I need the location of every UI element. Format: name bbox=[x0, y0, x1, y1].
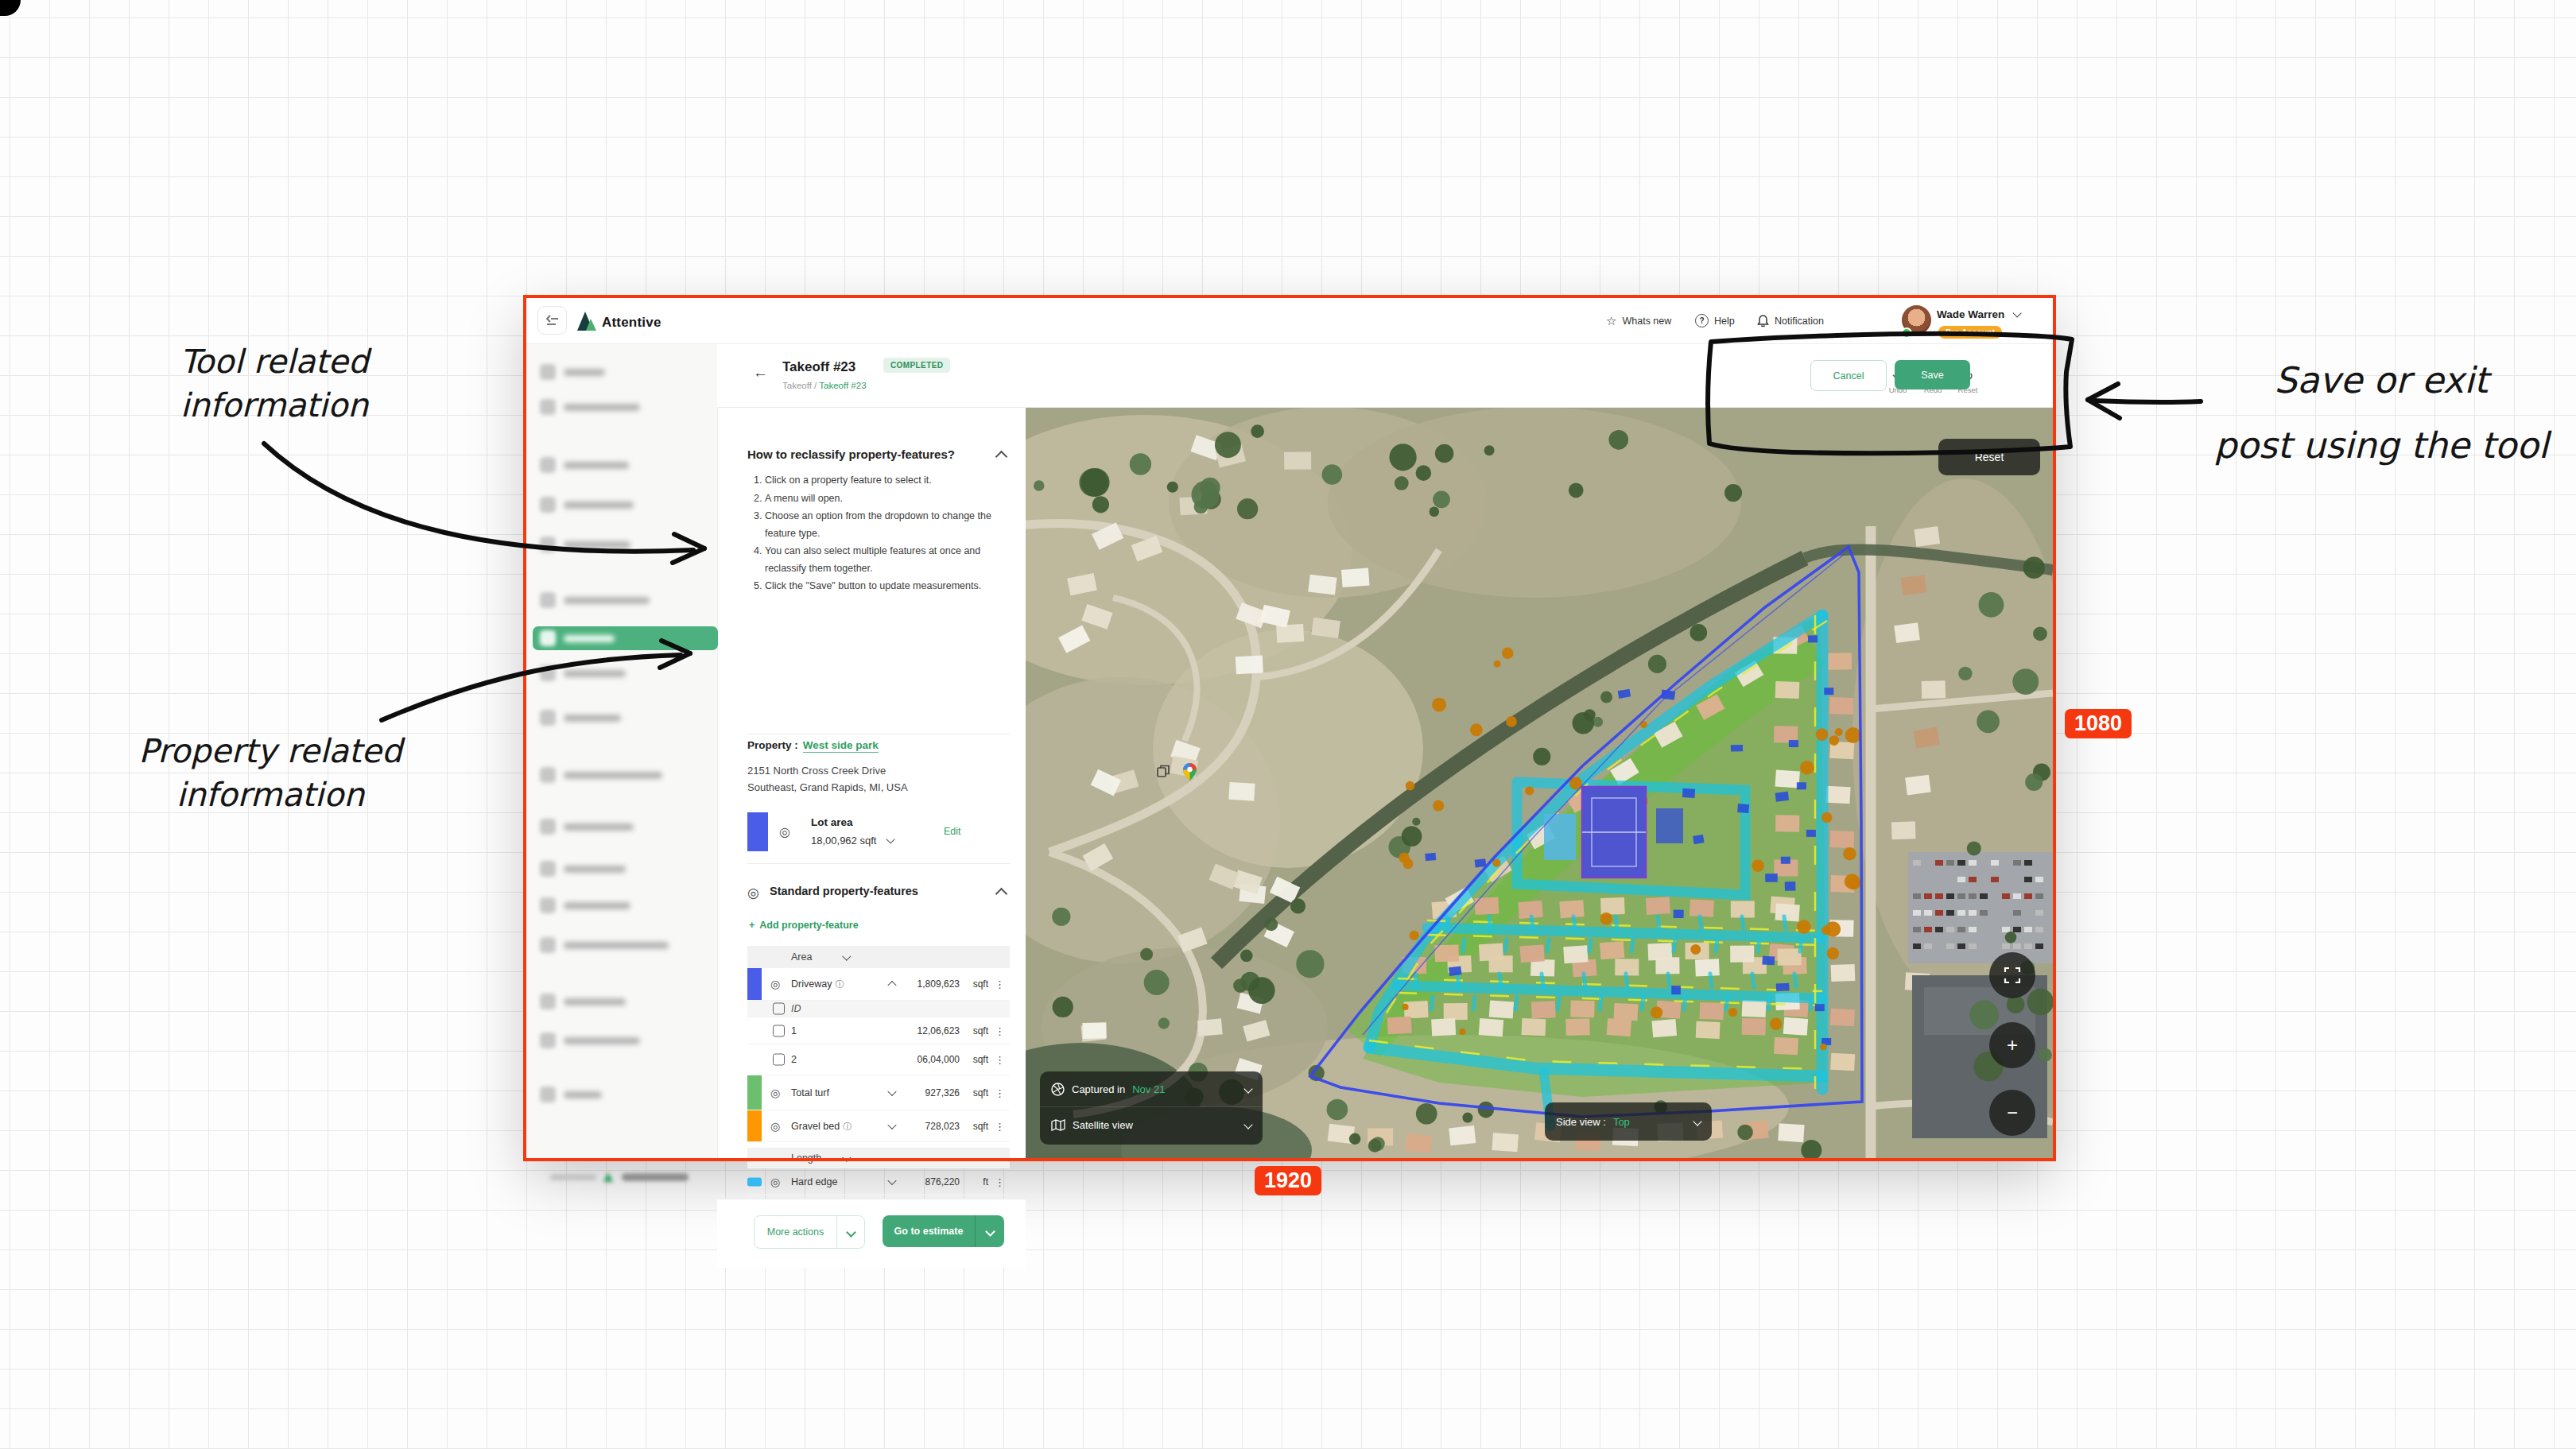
feature-row[interactable]: 2 06,04,000sqft ⋮ bbox=[747, 1044, 1010, 1075]
lot-area-value[interactable]: 18,00,962 sqft bbox=[811, 835, 892, 847]
howto-step: You can also select multiple features at… bbox=[765, 543, 1013, 577]
sidebar-item-icon bbox=[540, 364, 556, 380]
annotation-property-note: Property relatedinformation bbox=[76, 730, 465, 817]
howto-step: A menu will open. bbox=[765, 490, 1013, 508]
sidebar-item[interactable] bbox=[533, 661, 718, 685]
sidebar-item[interactable] bbox=[533, 1083, 718, 1106]
fullscreen-icon bbox=[2004, 967, 2021, 984]
feature-visibility-icon[interactable]: ◎ bbox=[770, 978, 780, 990]
feature-color-swatch bbox=[747, 1110, 762, 1141]
property-address-line1: 2151 North Cross Creek Drive bbox=[747, 765, 886, 777]
feature-row[interactable]: ID bbox=[747, 1001, 1010, 1017]
breadcrumb-current: Takeoff #23 bbox=[819, 381, 866, 390]
chevron-down-icon bbox=[1243, 1084, 1252, 1093]
sidebar-item-icon bbox=[540, 457, 556, 473]
sidebar-item-icon bbox=[540, 537, 556, 552]
chevron-down-icon bbox=[842, 1153, 851, 1162]
sidebar-item-label-blurred bbox=[564, 942, 669, 949]
property-panel: How to reclassify property-features? Cli… bbox=[717, 407, 1026, 1158]
sidebar-item[interactable] bbox=[533, 857, 718, 881]
sidebar-item[interactable] bbox=[533, 493, 718, 517]
sidebar-footer-logo bbox=[550, 1170, 693, 1184]
feature-expand-icon[interactable] bbox=[887, 1120, 896, 1129]
go-to-estimate-button[interactable]: Go to estimate bbox=[883, 1215, 1004, 1247]
user-name[interactable]: Wade Warren bbox=[1937, 308, 2019, 320]
whats-new-link[interactable]: ☆ Whats new bbox=[1606, 298, 1671, 343]
divider bbox=[747, 734, 1010, 734]
sidebar-item-icon bbox=[540, 1087, 556, 1102]
row-checkbox[interactable] bbox=[773, 1025, 785, 1036]
chevron-down-icon bbox=[1243, 1120, 1252, 1129]
sidebar-item-label-blurred bbox=[564, 1037, 640, 1044]
height-dimension-badge: 1080 bbox=[2065, 709, 2132, 738]
feature-group-row[interactable]: Area bbox=[747, 946, 1010, 968]
captured-date-value: Nov 21 bbox=[1132, 1083, 1165, 1095]
sidebar-item-label-blurred bbox=[564, 902, 630, 909]
chevron-down-icon bbox=[2012, 308, 2021, 317]
sidebar-item-label-blurred bbox=[564, 635, 615, 642]
breadcrumb: Takeoff / Takeoff #23 bbox=[782, 381, 867, 390]
panel-footer: More actions Go to estimate bbox=[717, 1199, 1026, 1268]
howto-step: Click the "Save" button to update measur… bbox=[765, 578, 1013, 595]
fullscreen-button[interactable] bbox=[1989, 952, 2035, 998]
annotation-save-note: Save or exitpost using the tool bbox=[2194, 348, 2568, 478]
row-menu-icon[interactable]: ⋮ bbox=[995, 1087, 1005, 1098]
feature-table: Area ◎ Drivewayⓘ 1,809,623sqft ⋮ ID 1 12… bbox=[747, 946, 1010, 1195]
feature-row[interactable]: ◎ Drivewayⓘ 1,809,623sqft ⋮ bbox=[747, 968, 1010, 1001]
bell-icon bbox=[1757, 315, 1769, 327]
side-view-value: Top bbox=[1613, 1116, 1630, 1128]
sidebar-item-selected[interactable] bbox=[533, 626, 718, 650]
more-actions-button[interactable]: More actions bbox=[754, 1215, 865, 1249]
cancel-button[interactable]: Cancel bbox=[1810, 360, 1887, 391]
copy-address-icon[interactable] bbox=[1155, 763, 1171, 779]
sidebar-item-icon bbox=[540, 819, 556, 835]
row-menu-icon[interactable]: ⋮ bbox=[995, 1025, 1005, 1036]
feature-visibility-icon[interactable]: ◎ bbox=[770, 1176, 780, 1188]
attentive-logo-icon bbox=[576, 311, 598, 331]
feature-row[interactable]: ◎ Hard edge 876,220ft ⋮ bbox=[747, 1168, 1010, 1195]
status-badge: COMPLETED bbox=[883, 358, 950, 373]
lot-area-title: Lot area bbox=[811, 816, 853, 828]
property-address-line2: Southeast, Grand Rapids, MI, USA bbox=[747, 781, 908, 793]
sidebar-item[interactable] bbox=[533, 706, 718, 730]
sidebar-item-label-blurred bbox=[564, 1091, 602, 1098]
feature-row[interactable]: 1 12,06,623sqft ⋮ bbox=[747, 1017, 1010, 1044]
attentive-logo-text: Attentive bbox=[602, 315, 661, 331]
takeoff-title: Takeoff #23 bbox=[782, 359, 855, 375]
feature-color-swatch bbox=[747, 1177, 762, 1186]
howto-step: Choose an option from the dropdown to ch… bbox=[765, 508, 1013, 542]
breadcrumb-divider: / bbox=[814, 381, 817, 390]
sidebar-item[interactable] bbox=[533, 893, 718, 917]
back-button[interactable]: ← bbox=[753, 364, 768, 382]
sidebar-item[interactable] bbox=[533, 395, 718, 419]
online-status-dot bbox=[1901, 327, 1912, 339]
captured-date-selector[interactable]: Captured in Nov 21 bbox=[1040, 1071, 1263, 1106]
sidebar-collapse-button[interactable] bbox=[537, 306, 567, 335]
sidebar-item-icon bbox=[540, 1033, 556, 1048]
sidebar-item-icon bbox=[540, 710, 556, 726]
feature-row[interactable]: ◎ Total turf 927,326sqft ⋮ bbox=[747, 1075, 1010, 1110]
select-all-checkbox[interactable] bbox=[773, 1003, 785, 1015]
lot-visibility-icon[interactable]: ◎ bbox=[779, 824, 790, 839]
notification-link[interactable]: Notification bbox=[1757, 298, 1824, 343]
sidebar-item-icon bbox=[540, 994, 556, 1009]
map-view-selector[interactable]: Satellite view bbox=[1040, 1106, 1263, 1142]
map-layers-panel: Captured in Nov 21 Satellite view bbox=[1040, 1071, 1263, 1145]
satellite-map[interactable] bbox=[1026, 407, 2053, 1158]
map-icon bbox=[1051, 1119, 1065, 1131]
sidebar-item-label-blurred bbox=[564, 597, 650, 604]
zoom-out-button[interactable]: − bbox=[1989, 1090, 2035, 1136]
feature-visibility-icon[interactable]: ◎ bbox=[770, 1087, 780, 1099]
help-link[interactable]: ? Help bbox=[1695, 298, 1735, 343]
map-viewport[interactable]: Reset Captured in Nov 21 Satellite view bbox=[1026, 407, 2053, 1158]
howto-steps: Click on a property feature to select it… bbox=[747, 472, 1013, 596]
feature-visibility-icon[interactable]: ◎ bbox=[770, 1120, 780, 1133]
sidebar-item-label-blurred bbox=[564, 866, 626, 873]
howto-collapse-icon[interactable] bbox=[995, 451, 1008, 463]
sidebar-item-label-blurred bbox=[564, 462, 629, 469]
feature-color-swatch bbox=[747, 1075, 762, 1110]
sidebar-item-label-blurred bbox=[564, 715, 621, 722]
row-menu-icon[interactable]: ⋮ bbox=[995, 978, 1005, 990]
sidebar-item[interactable] bbox=[533, 360, 718, 384]
app-header: Attentive ☆ Whats new ? Help Notificatio… bbox=[526, 298, 2053, 344]
features-section-title: Standard property-features bbox=[770, 885, 918, 897]
star-icon: ☆ bbox=[1606, 314, 1616, 328]
breadcrumb-parent[interactable]: Takeoff bbox=[782, 381, 812, 390]
sidebar-item-icon bbox=[540, 937, 556, 953]
pro-account-badge: Pro Account bbox=[1938, 326, 2002, 339]
row-checkbox[interactable] bbox=[773, 1054, 785, 1066]
divider bbox=[747, 863, 1010, 864]
features-collapse-icon[interactable] bbox=[995, 888, 1008, 901]
sidebar-item-icon bbox=[540, 592, 556, 608]
sidebar-item[interactable] bbox=[533, 533, 718, 556]
sidebar-item-icon bbox=[540, 665, 556, 681]
sidebar-item-label-blurred bbox=[564, 998, 626, 1005]
sidebar-item[interactable] bbox=[533, 815, 718, 839]
sidebar-item-label-blurred bbox=[564, 823, 634, 831]
row-menu-icon[interactable]: ⋮ bbox=[995, 1054, 1005, 1066]
row-menu-icon[interactable]: ⋮ bbox=[995, 1120, 1005, 1132]
add-property-feature-link[interactable]: +Add property-feature bbox=[749, 920, 859, 931]
sidebar-item[interactable] bbox=[533, 1029, 718, 1052]
sidebar-item[interactable] bbox=[533, 933, 718, 957]
info-icon: ⓘ bbox=[843, 1121, 852, 1130]
sidebar-item[interactable] bbox=[533, 453, 718, 477]
app-sidebar bbox=[526, 343, 718, 1158]
sidebar-item-label-blurred bbox=[564, 369, 605, 376]
feature-expand-icon[interactable] bbox=[887, 1176, 896, 1184]
chevron-down-icon bbox=[985, 1226, 995, 1237]
feature-group-row[interactable]: Length bbox=[747, 1148, 1010, 1168]
property-name-link[interactable]: West side park bbox=[803, 739, 879, 753]
zoom-in-button[interactable]: + bbox=[1989, 1022, 2035, 1068]
sidebar-item-icon bbox=[540, 861, 556, 877]
sidebar-item-label-blurred bbox=[564, 772, 662, 779]
info-icon: ⓘ bbox=[835, 979, 844, 989]
google-maps-pin-icon[interactable] bbox=[1183, 763, 1197, 781]
save-button[interactable]: Save bbox=[1895, 360, 1970, 389]
side-view-selector[interactable]: Side view : Top bbox=[1545, 1102, 1712, 1141]
capture-aperture-icon bbox=[1051, 1083, 1065, 1096]
lot-area-color-swatch bbox=[747, 812, 768, 851]
chevron-down-icon bbox=[842, 952, 851, 961]
howto-step: Click on a property feature to select it… bbox=[765, 472, 1013, 490]
sidebar-item[interactable] bbox=[533, 990, 718, 1013]
attentive-app-window: Attentive ☆ Whats new ? Help Notificatio… bbox=[526, 298, 2053, 1158]
help-icon: ? bbox=[1695, 314, 1709, 327]
takeoff-toolbar: ← Takeoff #23 COMPLETED Takeoff / Takeof… bbox=[717, 343, 2053, 408]
sidebar-item-label-blurred bbox=[564, 404, 640, 411]
row-menu-icon[interactable]: ⋮ bbox=[995, 1176, 1005, 1187]
sidebar-item-icon bbox=[540, 630, 556, 646]
sidebar-item-icon bbox=[540, 497, 556, 513]
features-section-icon: ◎ bbox=[747, 885, 759, 901]
feature-expand-icon[interactable] bbox=[887, 981, 896, 990]
sidebar-item-icon bbox=[540, 767, 556, 783]
property-row: Property :West side park bbox=[747, 739, 879, 751]
feature-expand-icon[interactable] bbox=[887, 1087, 896, 1095]
feature-color-swatch bbox=[747, 968, 762, 1000]
map-reset-button[interactable]: Reset bbox=[1938, 439, 2040, 475]
sidebar-item-icon bbox=[540, 399, 556, 415]
chevron-down-icon bbox=[886, 835, 894, 843]
howto-title: How to reclassify property-features? bbox=[747, 447, 978, 461]
chevron-down-icon bbox=[846, 1227, 856, 1238]
sidebar-item[interactable] bbox=[533, 763, 718, 787]
annotation-tool-note: Tool relatedinformation bbox=[103, 340, 445, 428]
width-dimension-badge: 1920 bbox=[1255, 1166, 1321, 1195]
sidebar-item[interactable] bbox=[533, 588, 718, 612]
edit-lot-area-link[interactable]: Edit bbox=[944, 826, 961, 837]
sidebar-item-icon bbox=[540, 897, 556, 913]
feature-row[interactable]: ◎ Gravel bedⓘ 728,023sqft ⋮ bbox=[747, 1110, 1010, 1142]
chevron-down-icon bbox=[1693, 1117, 1701, 1125]
collapse-left-icon bbox=[545, 314, 560, 327]
sidebar-item-label-blurred bbox=[564, 502, 634, 509]
sidebar-item-label-blurred bbox=[564, 541, 630, 548]
plus-icon: + bbox=[749, 920, 755, 931]
sidebar-item-label-blurred bbox=[564, 670, 626, 677]
